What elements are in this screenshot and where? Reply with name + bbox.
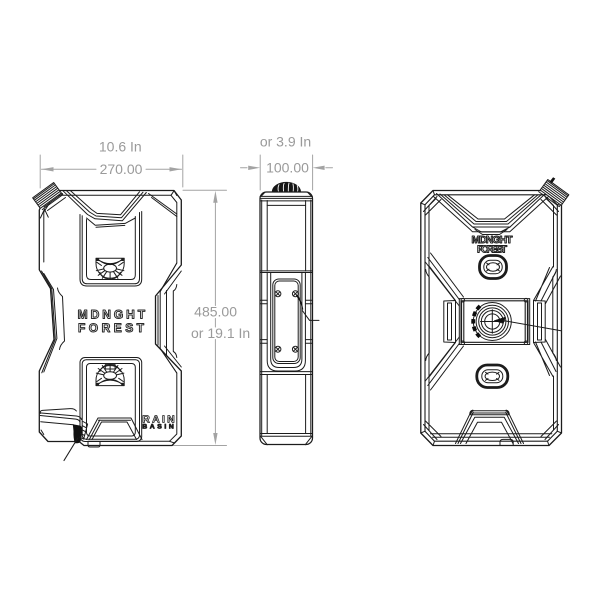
svg-text:or 19.1 In: or 19.1 In <box>191 325 250 341</box>
svg-text:10.6 In: 10.6 In <box>99 139 142 155</box>
svg-text:FOREST: FOREST <box>477 244 508 256</box>
svg-text:485.00: 485.00 <box>194 304 237 320</box>
svg-text:270.00: 270.00 <box>100 161 143 177</box>
svg-text:FOREST: FOREST <box>78 321 145 335</box>
svg-text:BASIN: BASIN <box>142 424 174 431</box>
svg-text:100.00: 100.00 <box>266 160 309 176</box>
svg-text:or 3.9 In: or 3.9 In <box>260 134 311 150</box>
svg-text:MDNGHT: MDNGHT <box>78 308 146 322</box>
